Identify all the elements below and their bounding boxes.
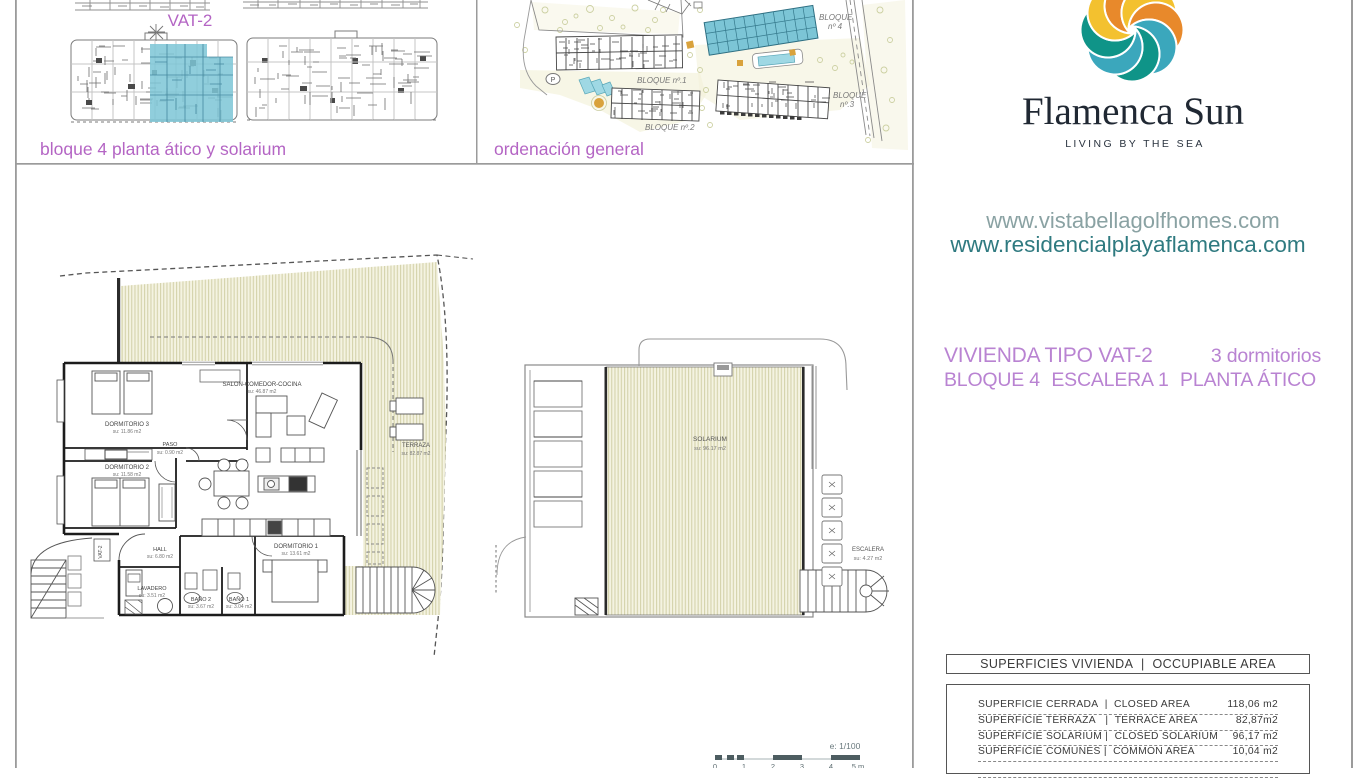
svg-text:BLOQUE nº.2: BLOQUE nº.2 xyxy=(645,123,695,132)
svg-text:P: P xyxy=(551,77,556,84)
svg-text:VAT-2: VAT-2 xyxy=(98,545,104,558)
svg-text:BAÑO 2: BAÑO 2 xyxy=(191,596,211,603)
svg-text:TERRAZA: TERRAZA xyxy=(402,443,430,449)
svg-text:ESCALERA: ESCALERA xyxy=(852,547,884,553)
svg-text:su: 11.86 m2: su: 11.86 m2 xyxy=(113,429,142,435)
svg-text:0: 0 xyxy=(713,762,717,768)
svg-text:HALL: HALL xyxy=(153,547,167,553)
svg-text:su: 3.04 m2: su: 3.04 m2 xyxy=(226,604,252,610)
svg-text:DORMITORIO 3: DORMITORIO 3 xyxy=(105,422,150,428)
svg-text:DORMITORIO 2: DORMITORIO 2 xyxy=(105,465,150,471)
svg-text:BAÑO 1: BAÑO 1 xyxy=(229,596,249,603)
svg-text:5 m: 5 m xyxy=(852,762,865,768)
svg-text:1: 1 xyxy=(742,762,746,768)
svg-text:su: 13.61 m2: su: 13.61 m2 xyxy=(282,551,311,557)
svg-text:2: 2 xyxy=(771,762,775,768)
svg-text:SALON-COMEDOR-COCINA: SALON-COMEDOR-COCINA xyxy=(222,382,301,388)
svg-text:su: 3.67 m2: su: 3.67 m2 xyxy=(188,604,214,610)
svg-text:su: 96.17 m2: su: 96.17 m2 xyxy=(694,446,726,452)
svg-text:DORMITORIO 1: DORMITORIO 1 xyxy=(274,544,319,550)
svg-text:su: 82.87 m2: su: 82.87 m2 xyxy=(402,451,431,457)
svg-text:SOLARIUM: SOLARIUM xyxy=(693,436,727,443)
svg-text:su: 4.27 m2: su: 4.27 m2 xyxy=(854,556,883,562)
svg-text:3: 3 xyxy=(800,762,804,768)
svg-text:nº 4: nº 4 xyxy=(828,22,843,31)
svg-text:e: 1/100: e: 1/100 xyxy=(830,741,861,751)
svg-text:su: 3.51 m2: su: 3.51 m2 xyxy=(139,593,165,599)
svg-text:PASO: PASO xyxy=(163,442,179,448)
svg-text:BLOQUE: BLOQUE xyxy=(833,91,867,100)
svg-text:su: 11.58 m2: su: 11.58 m2 xyxy=(113,472,142,478)
svg-text:su: 6.80 m2: su: 6.80 m2 xyxy=(147,554,173,560)
svg-text:LAVADERO: LAVADERO xyxy=(137,586,167,592)
svg-text:4: 4 xyxy=(829,762,833,768)
svg-text:su: 0.90 m2: su: 0.90 m2 xyxy=(157,450,183,456)
svg-text:BLOQUE nº.1: BLOQUE nº.1 xyxy=(637,76,687,85)
svg-text:su: 46.87 m2: su: 46.87 m2 xyxy=(248,389,277,395)
svg-text:nº.3: nº.3 xyxy=(840,100,855,109)
